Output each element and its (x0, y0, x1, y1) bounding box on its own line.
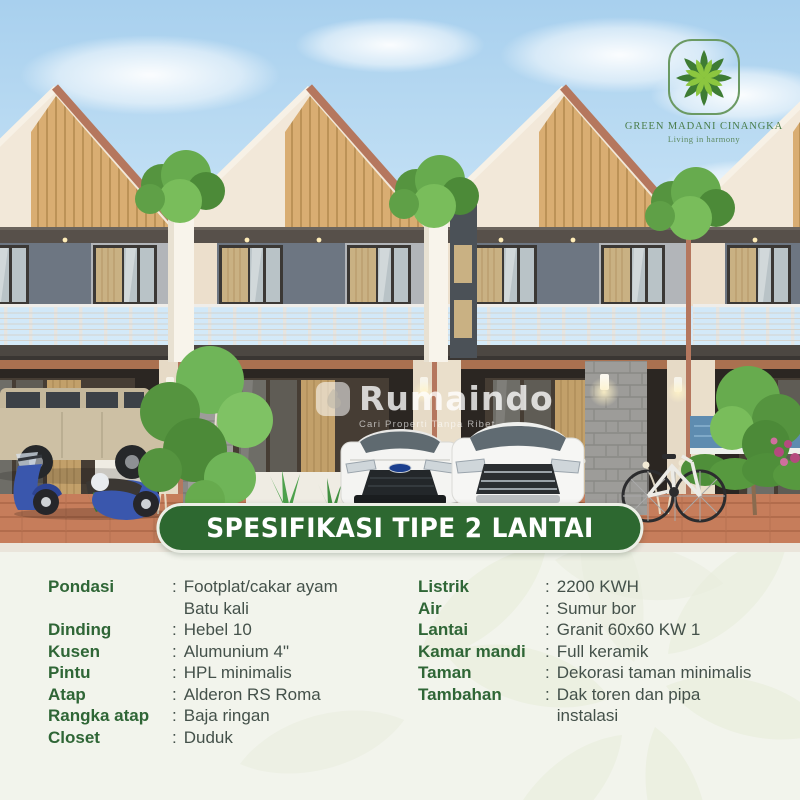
spec-row: Kamar mandi : Full keramik (418, 641, 794, 663)
spec-colon: : (545, 662, 550, 684)
brand-tagline: Living in harmony (624, 134, 784, 144)
spec-label: Air (418, 598, 545, 620)
spec-row: Closet : Duduk (48, 727, 408, 749)
spec-list-right: Listrik : 2200 KWH Air : Sumur bor Lanta… (418, 576, 794, 727)
spec-value: Footplat/cakar ayam Batu kali (184, 576, 338, 619)
spec-colon: : (545, 598, 550, 620)
stone-pillar-right (585, 361, 647, 515)
spec-colon: : (545, 641, 550, 663)
spec-banner-title: SPESIFIKASI TIPE 2 LANTAI (206, 513, 593, 544)
spec-row: Pondasi : Footplat/cakar ayam Batu kali (48, 576, 408, 619)
spec-row: Rangka atap : Baja ringan (48, 705, 408, 727)
spec-row: Listrik : 2200 KWH (418, 576, 794, 598)
spec-row: Lantai : Granit 60x60 KW 1 (418, 619, 794, 641)
spec-label: Kamar mandi (418, 641, 545, 663)
spec-value: Granit 60x60 KW 1 (557, 619, 701, 641)
spec-label: Taman (418, 662, 545, 684)
brand-name: GREEN MADANI CINANGKA (624, 121, 784, 132)
spec-value: Hebel 10 (184, 619, 252, 641)
spec-banner: SPESIFIKASI TIPE 2 LANTAI (156, 503, 643, 553)
spec-label: Kusen (48, 641, 172, 663)
spec-label: Pondasi (48, 576, 172, 598)
spec-value: Dak toren dan pipa instalasi (557, 684, 701, 727)
brand-logo: GREEN MADANI CINANGKA Living in harmony (624, 38, 784, 144)
spec-row: Taman : Dekorasi taman minimalis (418, 662, 794, 684)
watermark-brand: Rumaindo (359, 382, 554, 416)
spec-row: Tambahan : Dak toren dan pipa instalasi (418, 684, 794, 727)
spec-colon: : (545, 684, 550, 706)
spec-label: Closet (48, 727, 172, 749)
rumaindo-app-icon (316, 382, 350, 416)
spec-section: Pondasi : Footplat/cakar ayam Batu kali … (0, 552, 800, 800)
spec-value: Alumunium 4" (184, 641, 289, 663)
spec-row: Pintu : HPL minimalis (48, 662, 408, 684)
spec-colon: : (172, 619, 177, 641)
spec-row: Kusen : Alumunium 4" (48, 641, 408, 663)
spec-row: Dinding : Hebel 10 (48, 619, 408, 641)
spec-colon: : (545, 619, 550, 641)
watermark-text: Rumaindo Cari Properti Tanpa Ribet (359, 382, 554, 430)
spec-label: Dinding (48, 619, 172, 641)
spec-value: HPL minimalis (184, 662, 292, 684)
spec-label: Rangka atap (48, 705, 172, 727)
spec-colon: : (172, 576, 177, 598)
spec-label: Pintu (48, 662, 172, 684)
spec-colon: : (172, 662, 177, 684)
spec-colon: : (172, 727, 177, 749)
spec-colon: : (545, 576, 550, 598)
spec-value: 2200 KWH (557, 576, 639, 598)
spec-colon: : (172, 641, 177, 663)
spec-row: Atap : Alderon RS Roma (48, 684, 408, 706)
spec-row: Air : Sumur bor (418, 598, 794, 620)
spec-colon: : (172, 705, 177, 727)
white-hatchback (338, 429, 462, 513)
spec-colon: : (172, 684, 177, 706)
watermark-tagline: Cari Properti Tanpa Ribet (359, 419, 554, 430)
spec-list-left: Pondasi : Footplat/cakar ayam Batu kali … (48, 576, 408, 748)
flyer: GREEN MADANI CINANGKA Living in harmony … (0, 0, 800, 800)
spec-value: Sumur bor (557, 598, 636, 620)
spec-value: Dekorasi taman minimalis (557, 662, 752, 684)
spec-value: Full keramik (557, 641, 649, 663)
watermark: Rumaindo Cari Properti Tanpa Ribet (316, 382, 554, 430)
spec-value: Alderon RS Roma (184, 684, 321, 706)
spec-label: Tambahan (418, 684, 545, 706)
spec-label: Listrik (418, 576, 545, 598)
spec-value: Duduk (184, 727, 233, 749)
spec-label: Atap (48, 684, 172, 706)
spec-value: Baja ringan (184, 705, 270, 727)
spec-label: Lantai (418, 619, 545, 641)
lotus-flower-icon (667, 38, 741, 116)
